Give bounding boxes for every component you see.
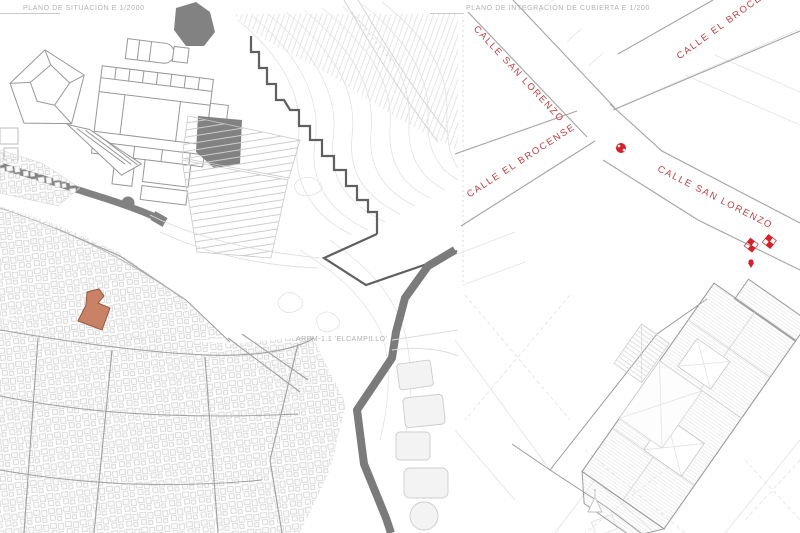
roof-plan-map [455,0,800,533]
roof-marker-icon [616,143,626,153]
east-blocks [392,330,458,530]
street-lines [455,0,800,270]
situation-map: ARPM-1.1 'ELCAMPILLO' [0,0,458,533]
drawing-board: PLANO DE SITUACIÓN E 1/2000 [0,0,800,533]
chimney-marker-icon [744,227,776,268]
roof-building [538,244,800,533]
urban-fabric [0,150,346,533]
area-label: ARPM-1.1 'ELCAMPILLO' [296,336,387,343]
